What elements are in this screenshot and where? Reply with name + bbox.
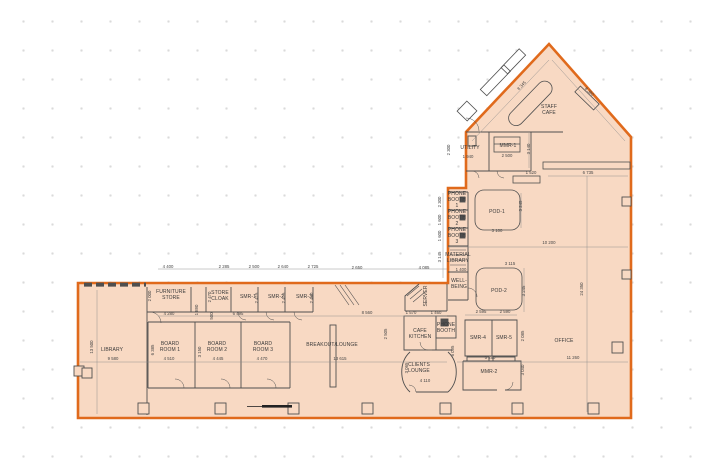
dim-booth3-h: 1 600 bbox=[438, 231, 442, 242]
room-label-office: OFFICE bbox=[555, 338, 574, 344]
dim-utility-h: 2 300 bbox=[447, 145, 451, 156]
dim-smr1-h: 2 415 bbox=[255, 293, 259, 304]
room-label-smr-4: SMR-4 bbox=[470, 335, 486, 341]
room-label-cafe-kitchen: CAFE KITCHEN bbox=[408, 328, 432, 340]
dim-smr3-w: 2 725 bbox=[308, 265, 319, 269]
room-label-phone-booth-3: PHONE BOOTH 3 bbox=[446, 227, 468, 245]
floor-plan-drawing bbox=[0, 0, 718, 470]
dim-server-w: 4 085 bbox=[419, 266, 430, 270]
room-label-smr-5: SMR-5 bbox=[496, 335, 512, 341]
dim-mmr2-h: 3 040 bbox=[521, 365, 525, 376]
room-label-pod-1: POD-1 bbox=[489, 209, 505, 215]
room-label-well-being: WELL-BEING bbox=[448, 278, 470, 290]
room-label-phone-booth-1: PHONE BOOTH 1 bbox=[446, 191, 468, 209]
dim-smr2-w: 2 640 bbox=[278, 265, 289, 269]
dim-furniture-store-d: 4 280 bbox=[164, 312, 175, 316]
dim-pod1-h: 3 245 bbox=[519, 201, 523, 212]
dim-smr5-w: 2 590 bbox=[500, 310, 511, 314]
room-label-phone-booth: PHONE BOOTH bbox=[435, 322, 457, 334]
dim-shelf2-w: 1 520 bbox=[526, 171, 537, 175]
dim-mmr1-h: 3 140 bbox=[527, 144, 531, 155]
room-label-staff-cafe: STAFF CAFE bbox=[539, 104, 559, 116]
dim-utility-w: 1 940 bbox=[463, 155, 474, 159]
cafe-counter-2 bbox=[501, 49, 526, 74]
dim-kitchen-w1: 1 570 bbox=[406, 311, 417, 315]
dim-board3-w: 4 470 bbox=[257, 357, 268, 361]
dim-wellbeing-w: 1 400 bbox=[456, 268, 467, 272]
room-label-mmr-2: MMR-2 bbox=[481, 369, 498, 375]
room-label-server: SERVER bbox=[423, 285, 429, 306]
dim-clients-w: 4 110 bbox=[420, 379, 430, 383]
dim-booth2-h: 1 600 bbox=[438, 215, 442, 226]
dim-pod1-w: 3 100 bbox=[492, 229, 503, 233]
dim-office-h: 24 350 bbox=[580, 282, 584, 295]
room-label-breakout-lounge: BREAKOUT/LOUNGE bbox=[306, 342, 358, 348]
room-label-furniture-store: FURNITURE STORE bbox=[156, 289, 186, 301]
dim-smr-block-h: 6 095 bbox=[451, 346, 455, 357]
dim-furniture-store-w: 4 400 bbox=[163, 265, 174, 269]
dim-kitchen-h: 2 505 bbox=[384, 329, 388, 340]
dim-cloak-d: 500 bbox=[210, 312, 214, 319]
dim-breakout-top-w: 8 560 bbox=[362, 311, 373, 315]
dim-cloak-block-w: 6 495 bbox=[233, 312, 244, 316]
room-label-phone-booth-2: PHONE BOOTH 2 bbox=[446, 209, 468, 227]
room-label-pod-2: POD-2 bbox=[491, 288, 507, 294]
dim-board1-h: 6 385 bbox=[151, 345, 155, 356]
room-label-library: LIBRARY bbox=[101, 347, 123, 353]
room-label-board-room-1: BOARD ROOM 1 bbox=[157, 341, 183, 353]
dim-pod2-h: 3 245 bbox=[522, 286, 526, 297]
dim-entry-w: 2 650 bbox=[352, 266, 363, 270]
dim-mmr1-w: 2 500 bbox=[502, 154, 513, 158]
dim-smr3-h: 2 440 bbox=[310, 293, 314, 304]
room-label-store-cloak: STORE CLOAK bbox=[210, 290, 230, 302]
dim-library-w: 9 580 bbox=[108, 357, 119, 361]
dim-library-h: 13 500 bbox=[90, 340, 94, 353]
dim-pod2-w: 3 115 bbox=[505, 262, 515, 266]
dim-smr1-w: 2 500 bbox=[249, 265, 260, 269]
dim-mmr2-w: 5 280 bbox=[485, 356, 496, 360]
dim-board2-w: 4 445 bbox=[213, 357, 224, 361]
dim-kitchen-w2: 1 460 bbox=[431, 311, 442, 315]
dim-shelf-w: 6 735 bbox=[583, 171, 594, 175]
room-label-utility: UTILITY bbox=[460, 145, 479, 151]
room-label-board-room-2: BOARD ROOM 2 bbox=[204, 341, 230, 353]
room-label-material-library: MATERIAL LIBRARY bbox=[445, 252, 471, 264]
room-label-clients-lounge: CLIENTS LOUNGE bbox=[406, 362, 432, 374]
dim-smr2-h: 2 415 bbox=[282, 293, 286, 304]
room-label-mmr-1: MMR-1 bbox=[500, 143, 517, 149]
dim-office-top-w: 10 200 bbox=[542, 241, 555, 245]
floor-plan: LIBRARY BOARD ROOM 1 BOARD ROOM 2 BOARD … bbox=[0, 0, 718, 470]
dim-smr5-h: 2 085 bbox=[521, 331, 525, 342]
dim-breakout-w: 13 615 bbox=[333, 357, 346, 361]
dim-board2-h: 3 150 bbox=[198, 347, 202, 358]
dim-cloak-w: 2 285 bbox=[219, 265, 230, 269]
dim-office-w: 11 260 bbox=[567, 356, 580, 360]
dim-board1-w: 4 510 bbox=[164, 357, 175, 361]
dim-clients-h: 3 065 bbox=[405, 363, 409, 374]
dim-lobby-h: 1 890 bbox=[195, 305, 199, 316]
dim-matlib-h: 3 145 bbox=[438, 252, 442, 263]
room-label-board-room-3: BOARD ROOM 3 bbox=[250, 341, 276, 353]
dim-furniture-store-h: 2 000 bbox=[148, 291, 152, 302]
dim-booth1-h: 2 300 bbox=[438, 197, 442, 208]
dim-cloak-h: 2 470 bbox=[208, 292, 212, 303]
dim-smr4-w: 2 595 bbox=[476, 310, 487, 314]
